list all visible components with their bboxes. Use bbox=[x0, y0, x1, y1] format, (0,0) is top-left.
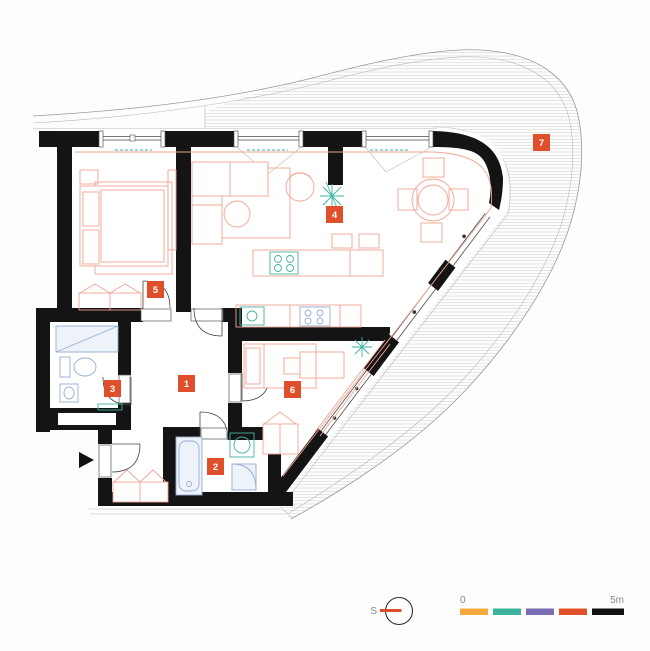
scale-segment-1 bbox=[460, 609, 488, 616]
scale-segment-4 bbox=[559, 609, 587, 616]
scale-segment-5 bbox=[592, 609, 624, 616]
room-label-5: 5 bbox=[147, 281, 164, 298]
svg-text:6: 6 bbox=[290, 385, 295, 396]
room-label-2: 2 bbox=[207, 458, 224, 475]
svg-text:1: 1 bbox=[184, 379, 190, 390]
svg-text:5: 5 bbox=[153, 285, 159, 296]
room-label-7: 7 bbox=[533, 134, 550, 151]
floorplan-page: 1 2 3 4 5 6 7 S 0 bbox=[0, 0, 650, 651]
svg-text:3: 3 bbox=[110, 384, 115, 395]
room-label-4: 4 bbox=[326, 206, 343, 223]
door-handle bbox=[413, 310, 417, 314]
compass: S bbox=[370, 598, 412, 625]
scale-start-label: 0 bbox=[460, 595, 466, 606]
svg-text:7: 7 bbox=[539, 138, 544, 149]
svg-text:2: 2 bbox=[213, 462, 218, 473]
scale-segment-3 bbox=[526, 609, 554, 616]
room-label-6: 6 bbox=[284, 381, 301, 398]
room-label-3: 3 bbox=[104, 380, 121, 397]
door-handle bbox=[462, 235, 466, 239]
scale-end-label: 5m bbox=[610, 595, 624, 606]
room-label-1: 1 bbox=[178, 375, 195, 392]
svg-text:4: 4 bbox=[332, 210, 338, 221]
exterior-step-lines bbox=[88, 509, 292, 518]
scale-segment-2 bbox=[493, 609, 521, 616]
floorplan-canvas: 1 2 3 4 5 6 7 S 0 bbox=[0, 0, 650, 651]
scale-bar: 0 5m bbox=[460, 595, 624, 615]
wall-niche bbox=[58, 413, 116, 425]
entrance-arrow bbox=[79, 452, 94, 468]
compass-label: S bbox=[370, 606, 377, 617]
